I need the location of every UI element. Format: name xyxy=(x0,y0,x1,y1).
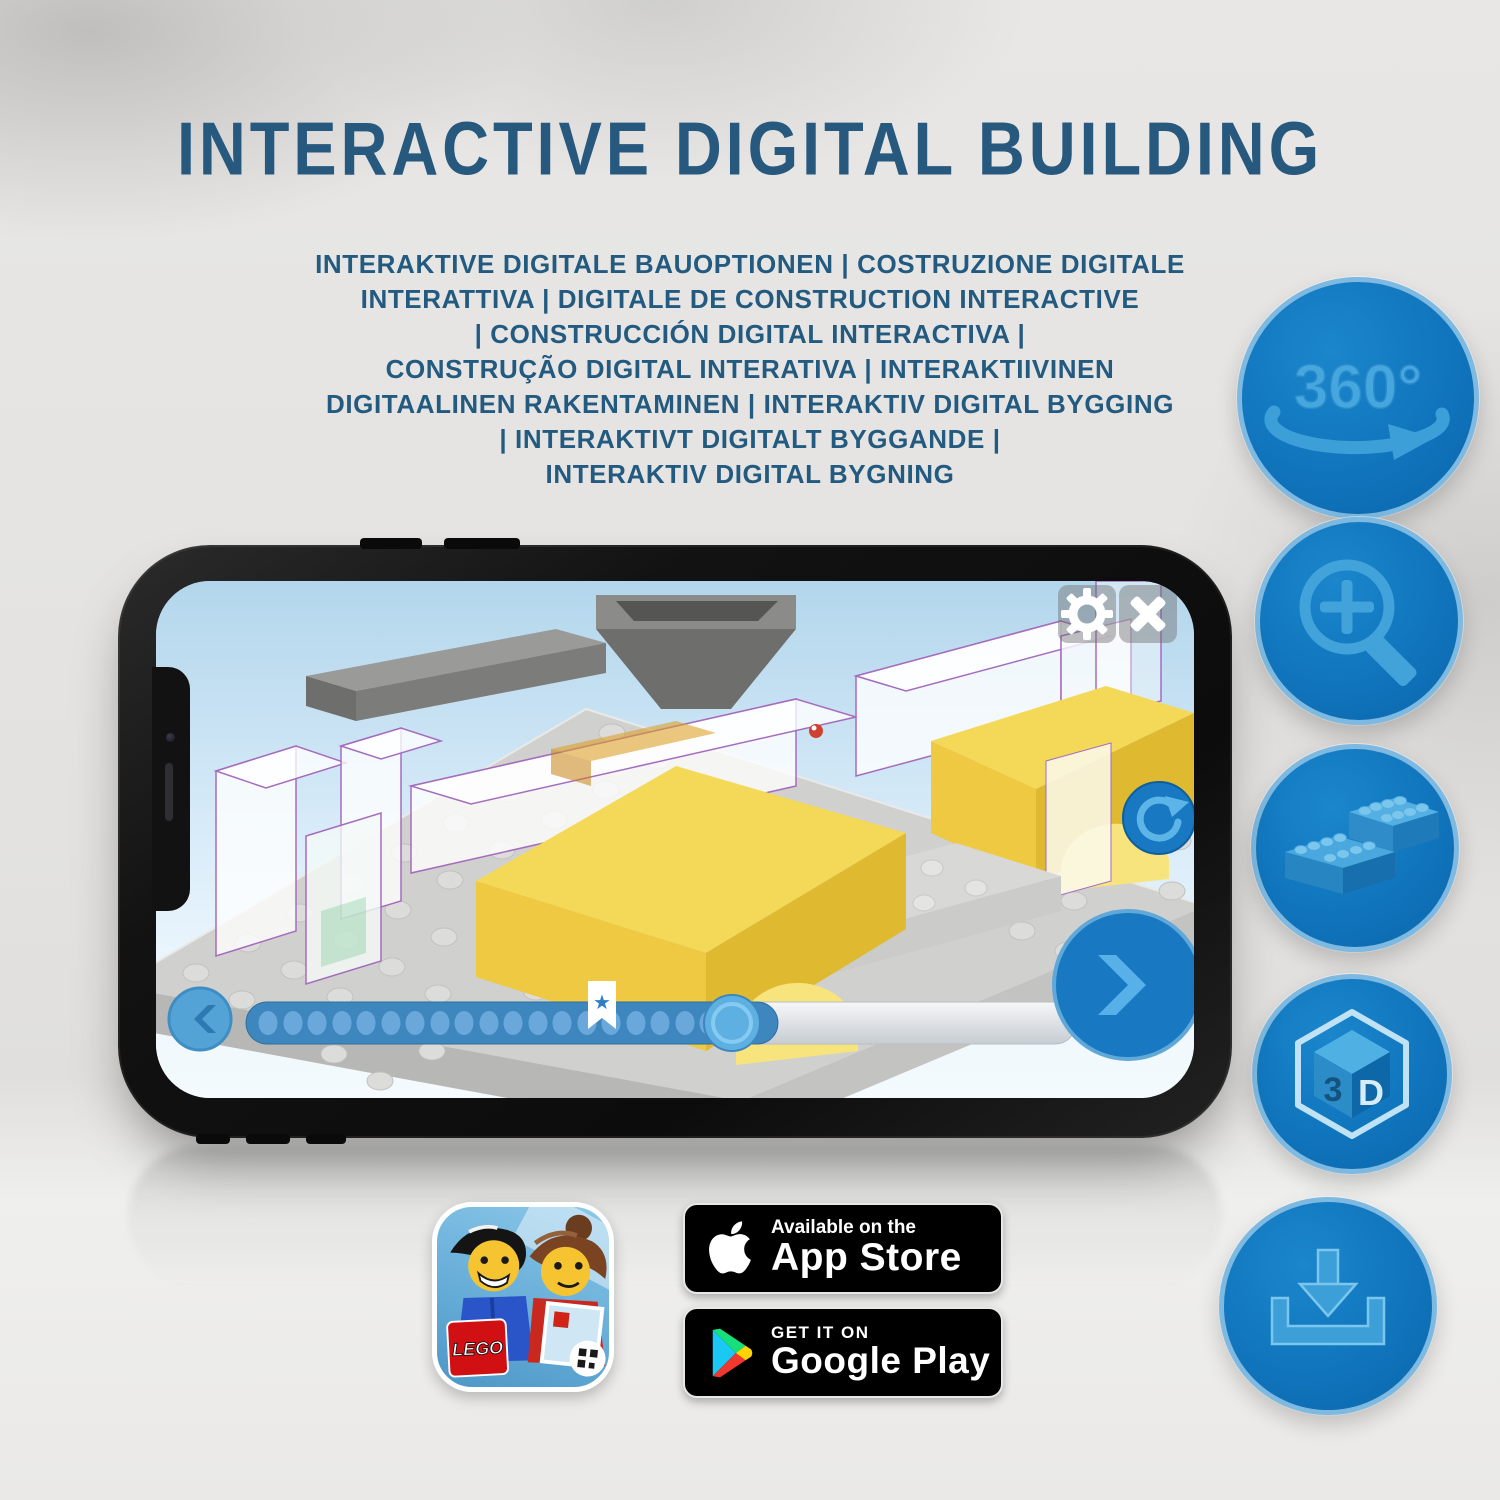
next-step-button[interactable] xyxy=(1054,911,1194,1059)
volume-button xyxy=(444,538,520,549)
lego-minifigures-art: LEGO xyxy=(437,1207,609,1387)
speaker-slot xyxy=(196,1134,230,1144)
zoom-in-icon xyxy=(1255,517,1463,725)
360-label: 360° xyxy=(1294,353,1422,422)
store-badges: Available on the App Store GET IT ON Goo… xyxy=(683,1203,1003,1411)
app-store-line1: Available on the xyxy=(771,1218,962,1238)
speaker-slot xyxy=(306,1134,346,1144)
poster: INTERACTIVE DIGITAL BUILDING INTERAKTIVE… xyxy=(0,0,1500,1500)
subtitle-multilingual: INTERAKTIVE DIGITALE BAUOPTIONEN | COSTR… xyxy=(200,247,1300,492)
volume-button xyxy=(360,538,422,549)
app-store-line2: App Store xyxy=(771,1238,962,1279)
phone-notch xyxy=(152,667,190,911)
subtitle-line: | CONSTRUCCIÓN DIGITAL INTERACTIVA | xyxy=(200,317,1300,352)
subtitle-line: DIGITAALINEN RAKENTAMINEN | INTERAKTIV D… xyxy=(200,387,1300,422)
subtitle-line: CONSTRUÇÃO DIGITAL INTERATIVA | INTERAKT… xyxy=(200,352,1300,387)
brick-icon xyxy=(1251,744,1459,952)
subtitle-line: INTERAKTIVE DIGITALE BAUOPTIONEN | COSTR… xyxy=(200,247,1300,282)
speaker-icon xyxy=(165,763,173,821)
svg-text:LEGO: LEGO xyxy=(452,1337,504,1360)
previous-step-button[interactable] xyxy=(169,988,231,1050)
360-rotation-icon: 360° xyxy=(1237,277,1479,519)
star-icon: ★ xyxy=(593,992,611,1014)
refresh-button[interactable] xyxy=(1123,782,1194,854)
lego-app-icon[interactable]: LEGO xyxy=(432,1202,614,1392)
google-play-badge[interactable]: GET IT ON Google Play xyxy=(683,1307,1003,1398)
apple-icon xyxy=(699,1221,763,1277)
progress-thumb[interactable] xyxy=(704,995,760,1051)
subtitle-line: INTERAKTIV DIGITAL BYGNING xyxy=(200,457,1300,492)
google-play-line2: Google Play xyxy=(771,1342,990,1381)
app-screen: ★ xyxy=(156,581,1194,1098)
3d-label-d: D xyxy=(1358,1072,1384,1113)
subtitle-line: | INTERAKTIVT DIGITALT BYGGANDE | xyxy=(200,422,1300,457)
phone-reflection xyxy=(128,1146,1222,1286)
phone-mockup: ★ xyxy=(118,545,1232,1138)
building-instructions-view[interactable]: ★ xyxy=(156,581,1194,1098)
3d-cube-icon: 3 D xyxy=(1252,974,1452,1174)
settings-button[interactable] xyxy=(1058,585,1116,643)
camera-icon xyxy=(166,733,175,742)
page-title: INTERACTIVE DIGITAL BUILDING xyxy=(23,106,1478,192)
lego-logo: LEGO xyxy=(447,1319,508,1377)
speaker-slot xyxy=(246,1134,290,1144)
3d-label-3: 3 xyxy=(1324,1071,1343,1109)
download-icon xyxy=(1219,1197,1437,1415)
google-play-icon xyxy=(699,1325,763,1381)
subtitle-line: INTERATTIVA | DIGITALE DE CONSTRUCTION I… xyxy=(200,282,1300,317)
close-button[interactable] xyxy=(1119,585,1177,643)
app-store-badge[interactable]: Available on the App Store xyxy=(683,1203,1003,1294)
